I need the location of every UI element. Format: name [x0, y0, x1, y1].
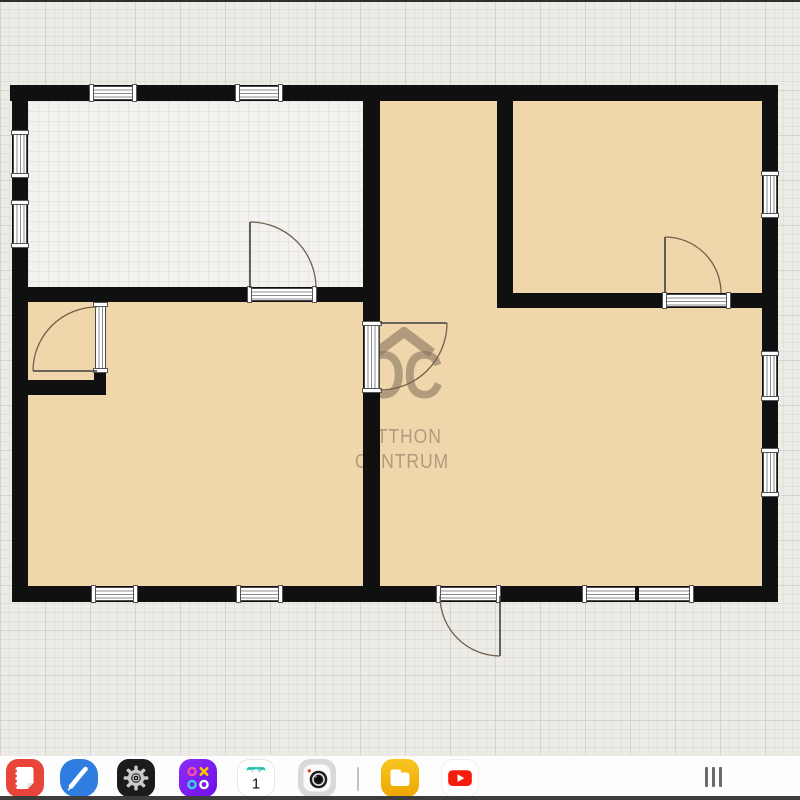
watermark-line1: OTTHON — [323, 426, 481, 449]
ox-game-icon — [179, 759, 217, 797]
pen-app-button[interactable] — [60, 759, 98, 797]
screen-top-edge — [0, 0, 800, 2]
window — [13, 201, 27, 247]
wall-topleft-room-bottom — [12, 287, 380, 302]
calendar-header-label: HÉT — [251, 768, 260, 773]
wall-right — [762, 85, 778, 602]
settings-gear-icon — [117, 759, 155, 797]
dock-separator — [357, 767, 359, 791]
settings-app-button[interactable] — [117, 759, 155, 797]
floorplan-viewport[interactable]: OC OTTHON CENTRUM — [0, 0, 800, 757]
door-threshold — [663, 294, 730, 307]
folder-icon — [381, 759, 419, 797]
game-app-button[interactable] — [179, 759, 217, 797]
door-threshold — [364, 322, 380, 392]
window — [92, 587, 137, 601]
watermark-line2: CENTRUM — [323, 451, 481, 474]
camera-icon — [298, 759, 336, 797]
dock-drag-handle-icon[interactable] — [703, 766, 727, 788]
door-threshold — [248, 288, 316, 301]
notes-icon — [6, 759, 44, 797]
wall-topright-room-bottom — [497, 293, 778, 308]
wall-alcove-bottom — [12, 380, 106, 395]
files-app-button[interactable] — [381, 759, 419, 797]
window — [90, 86, 136, 100]
wall-alcove-post — [94, 370, 106, 395]
window — [763, 449, 777, 496]
tablet-screen: OC OTTHON CENTRUM — [0, 0, 800, 800]
watermark-logo: OC — [328, 342, 476, 409]
door-threshold — [95, 303, 106, 372]
notes-app-button[interactable] — [6, 759, 44, 797]
window-mullion — [635, 587, 639, 601]
window — [763, 172, 777, 217]
calendar-icon: HÉT 1 — [238, 760, 274, 796]
youtube-app-button[interactable] — [441, 759, 479, 797]
window — [13, 131, 27, 177]
dock: HÉT 1 — [0, 755, 800, 797]
window — [763, 352, 777, 400]
screen-bottom-edge — [0, 796, 800, 800]
room-top-left — [28, 101, 363, 287]
wall-topright-room-left — [497, 85, 513, 293]
door-threshold — [437, 587, 500, 601]
youtube-icon — [442, 760, 478, 796]
calendar-day-label: 1 — [252, 775, 260, 792]
room-bottom-left — [28, 302, 363, 586]
window — [237, 587, 282, 601]
calendar-app-button[interactable]: HÉT 1 — [237, 759, 275, 797]
window — [236, 86, 282, 100]
pen-icon — [60, 759, 98, 797]
camera-app-button[interactable] — [298, 759, 336, 797]
